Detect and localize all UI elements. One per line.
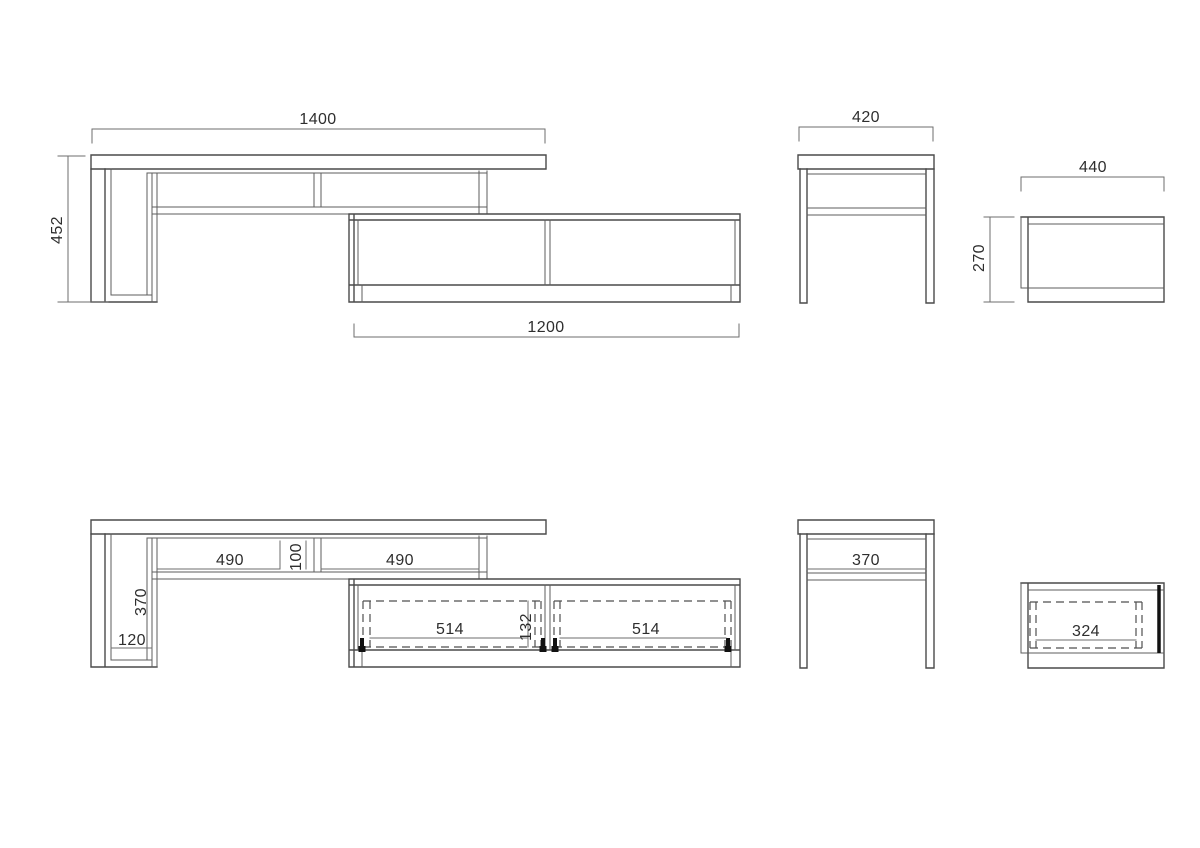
lowboard-plinth-b <box>362 650 731 667</box>
dim-leg-inner-height: 370 <box>133 588 150 616</box>
dim-leg-inner-height-label: 370 <box>133 588 150 616</box>
lowboard-side-back-strip <box>1021 217 1028 288</box>
dim-upper-depth-line <box>799 127 933 141</box>
dim-lowboard-width: 1200 <box>354 319 739 337</box>
dim-side-inner-width: 370 <box>807 552 926 569</box>
dim-door-opening-height-label: 132 <box>518 613 535 641</box>
dim-lowboard-depth-line <box>1021 177 1164 191</box>
dim-center-gap-label: 100 <box>288 543 305 571</box>
upper-unit-left-leg-inner <box>111 169 157 302</box>
upper-side-top-panel-b <box>798 520 934 534</box>
dim-lowboard-height: 270 <box>971 217 1014 302</box>
drawing-canvas: 1400 452 1200 420 440 270 <box>0 0 1200 848</box>
dim-overall-height-label: 452 <box>49 216 66 244</box>
view-lowboard-side-bottom: 324 <box>1021 583 1164 668</box>
dim-right-door-width: 514 <box>560 621 726 638</box>
lowboard-side-outline <box>1021 217 1164 302</box>
dim-leg-bottom: 120 <box>111 632 152 649</box>
dim-lowboard-height-label: 270 <box>971 244 988 272</box>
dim-lowboard-width-label: 1200 <box>527 319 564 336</box>
dim-left-door-width-label: 514 <box>436 621 464 638</box>
upper-side-shelf <box>807 174 926 215</box>
view-front-elevation-top: 1400 452 1200 <box>49 111 740 337</box>
upper-unit-shelf <box>147 173 487 214</box>
dim-lowboard-depth: 440 <box>1021 159 1164 191</box>
lowboard-side-details <box>1028 224 1164 288</box>
upper-unit-right-end-panel <box>479 171 487 214</box>
dim-lowboard-inner-width-label: 324 <box>1072 623 1100 640</box>
upper-unit-top-panel <box>91 155 546 169</box>
dim-left-shelf-width-label: 490 <box>216 552 244 569</box>
dim-right-shelf-width-label: 490 <box>386 552 414 569</box>
dim-leg-bottom-label: 120 <box>118 632 146 649</box>
upper-unit-shelf-divider <box>314 173 321 207</box>
view-front-elevation-bottom: 490 100 490 370 120 514 132 514 <box>91 520 740 667</box>
upper-unit-right-end-panel-b <box>479 536 487 579</box>
view-upper-side-bottom: 370 <box>798 520 934 668</box>
hinge-icon <box>359 638 366 652</box>
upper-unit-shelf-divider-b <box>314 538 321 572</box>
lowboard-side-details-b <box>1028 590 1164 653</box>
dim-lowboard-depth-label: 440 <box>1079 159 1107 176</box>
upper-unit-top-panel-b <box>91 520 546 534</box>
upper-unit-shelf-b <box>147 538 487 579</box>
lowboard-doors-b <box>358 585 735 650</box>
dim-overall-width: 1400 <box>92 111 545 143</box>
hinge-icon <box>552 638 559 652</box>
view-upper-side-top: 420 <box>798 109 934 303</box>
dim-right-door-width-label: 514 <box>632 621 660 638</box>
dim-overall-height: 452 <box>49 156 108 302</box>
upper-side-top-panel <box>798 155 934 169</box>
dim-door-opening-height: 132 <box>518 601 535 647</box>
lowboard-doors <box>358 220 735 285</box>
upper-side-legs <box>800 169 934 303</box>
dim-upper-depth-label: 420 <box>852 109 880 126</box>
dim-left-door-width: 514 <box>370 621 528 638</box>
dim-side-inner-width-label: 370 <box>852 552 880 569</box>
dim-left-shelf-width: 490 <box>158 552 280 569</box>
view-lowboard-side-top: 440 270 <box>971 159 1164 302</box>
dim-overall-width-label: 1400 <box>299 111 336 128</box>
furniture-dimension-drawing: 1400 452 1200 420 440 270 <box>0 0 1200 848</box>
dim-right-shelf-width: 490 <box>321 552 479 569</box>
lowboard-side-back-strip-b <box>1021 583 1028 653</box>
dim-overall-width-line <box>92 129 545 143</box>
dim-lowboard-inner-width: 324 <box>1036 623 1136 640</box>
lowboard-plinth <box>362 285 731 302</box>
dim-lowboard-height-line <box>984 217 1014 302</box>
dim-upper-depth: 420 <box>799 109 933 141</box>
dim-center-gap: 100 <box>280 541 306 571</box>
